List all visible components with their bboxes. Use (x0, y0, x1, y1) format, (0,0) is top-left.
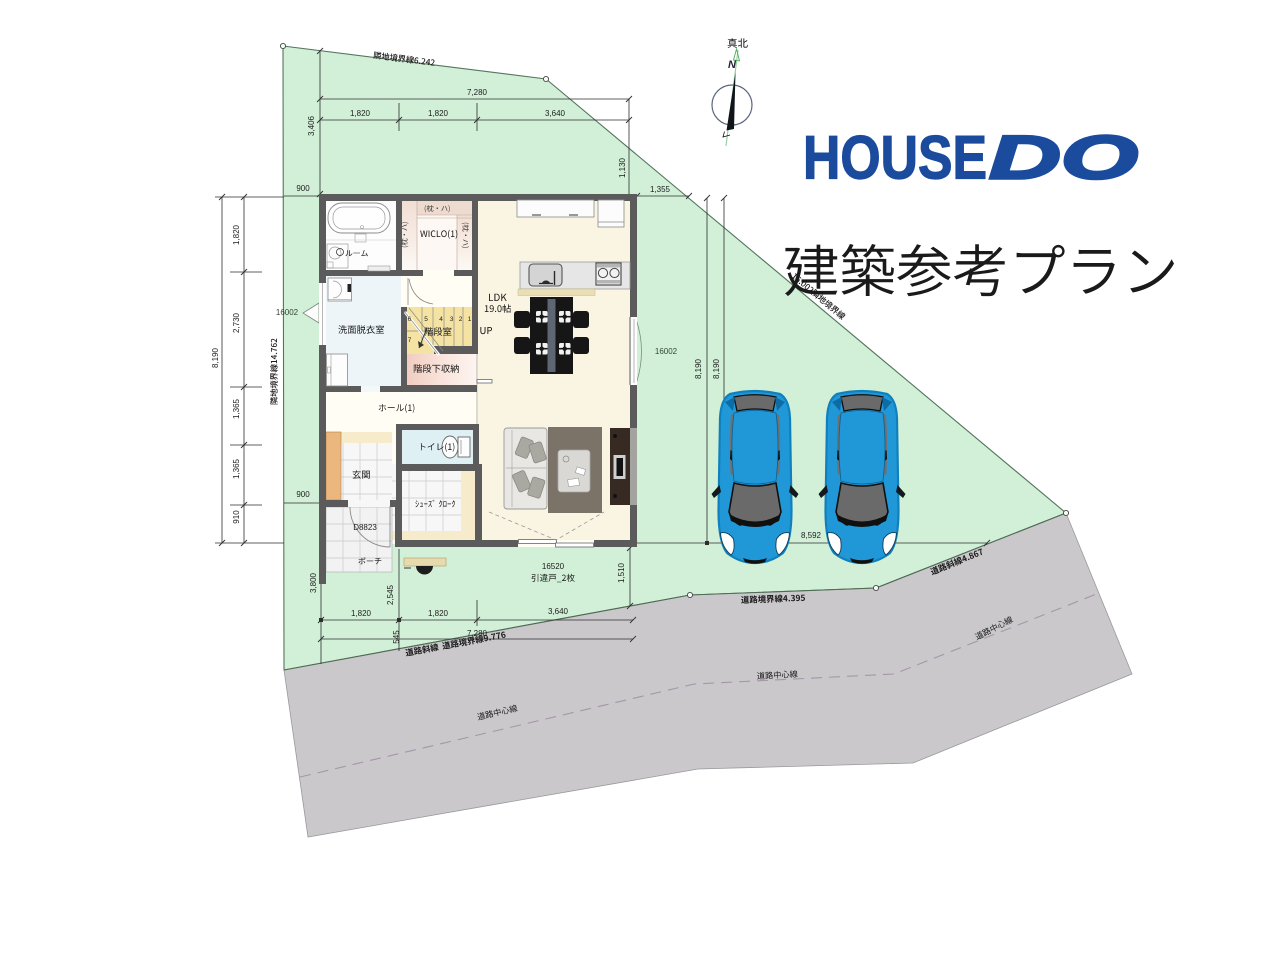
svg-text:N: N (728, 59, 737, 71)
svg-text:900: 900 (296, 490, 310, 499)
svg-text:1,365: 1,365 (232, 398, 241, 419)
svg-text:900: 900 (296, 184, 310, 193)
svg-text:1,130: 1,130 (618, 157, 627, 178)
svg-text:3,640: 3,640 (548, 607, 569, 616)
svg-text:1,820: 1,820 (428, 609, 449, 618)
svg-text:1,820: 1,820 (232, 224, 241, 245)
svg-text:1,510: 1,510 (617, 562, 626, 583)
svg-text:5: 5 (424, 316, 428, 323)
svg-text:16002: 16002 (655, 347, 678, 356)
svg-text:DO: DO (989, 124, 1138, 193)
svg-text:7,280: 7,280 (467, 629, 488, 638)
svg-text:8,592: 8,592 (801, 531, 822, 540)
svg-text:3: 3 (450, 316, 454, 323)
svg-text:7,280: 7,280 (467, 88, 488, 97)
svg-text:2,545: 2,545 (386, 584, 395, 605)
svg-text:1,365: 1,365 (232, 458, 241, 479)
svg-text:8,190: 8,190 (211, 347, 220, 368)
svg-text:2,730: 2,730 (232, 312, 241, 333)
svg-text:1,820: 1,820 (428, 109, 449, 118)
svg-text:6: 6 (408, 316, 412, 323)
svg-text:1,820: 1,820 (350, 109, 371, 118)
svg-text:3,406: 3,406 (307, 115, 316, 136)
svg-text:1,355: 1,355 (650, 185, 671, 194)
svg-text:3,640: 3,640 (545, 109, 566, 118)
svg-text:7: 7 (408, 337, 412, 344)
svg-text:1,820: 1,820 (351, 609, 372, 618)
svg-text:3,800: 3,800 (309, 572, 318, 593)
svg-text:HOUSE: HOUSE (803, 124, 987, 193)
svg-text:16520: 16520 (542, 562, 565, 571)
svg-text:910: 910 (232, 510, 241, 524)
svg-text:2: 2 (459, 316, 463, 323)
svg-text:545: 545 (392, 630, 401, 644)
svg-text:8,190: 8,190 (712, 358, 721, 379)
svg-text:D8823: D8823 (353, 523, 377, 532)
svg-text:4: 4 (439, 316, 443, 323)
svg-text:8,190: 8,190 (694, 358, 703, 379)
svg-text:16002: 16002 (276, 308, 299, 317)
svg-text:1: 1 (468, 316, 472, 323)
